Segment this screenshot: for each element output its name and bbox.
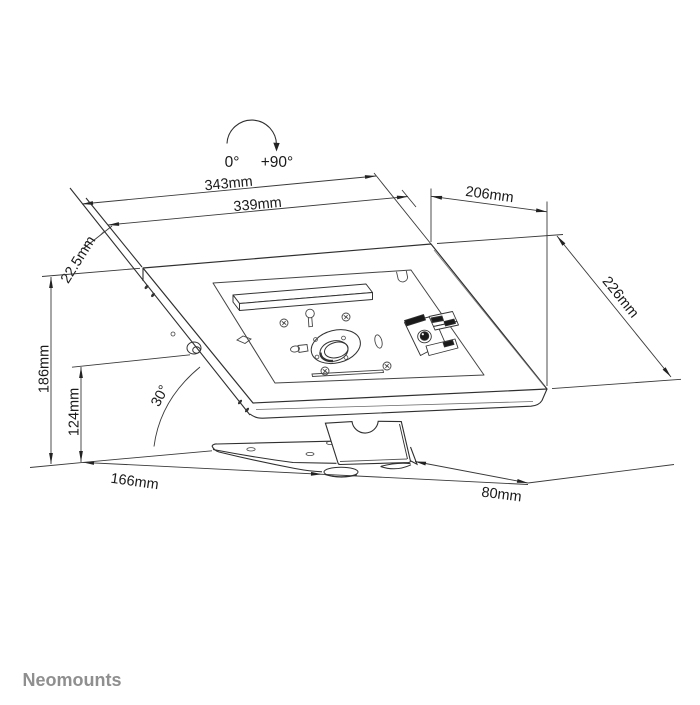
svg-text:Neomounts: Neomounts — [23, 670, 122, 690]
svg-text:0°: 0° — [225, 154, 240, 171]
svg-text:124mm: 124mm — [67, 388, 83, 436]
svg-text:186mm: 186mm — [37, 345, 53, 393]
svg-text:+90°: +90° — [261, 154, 294, 171]
